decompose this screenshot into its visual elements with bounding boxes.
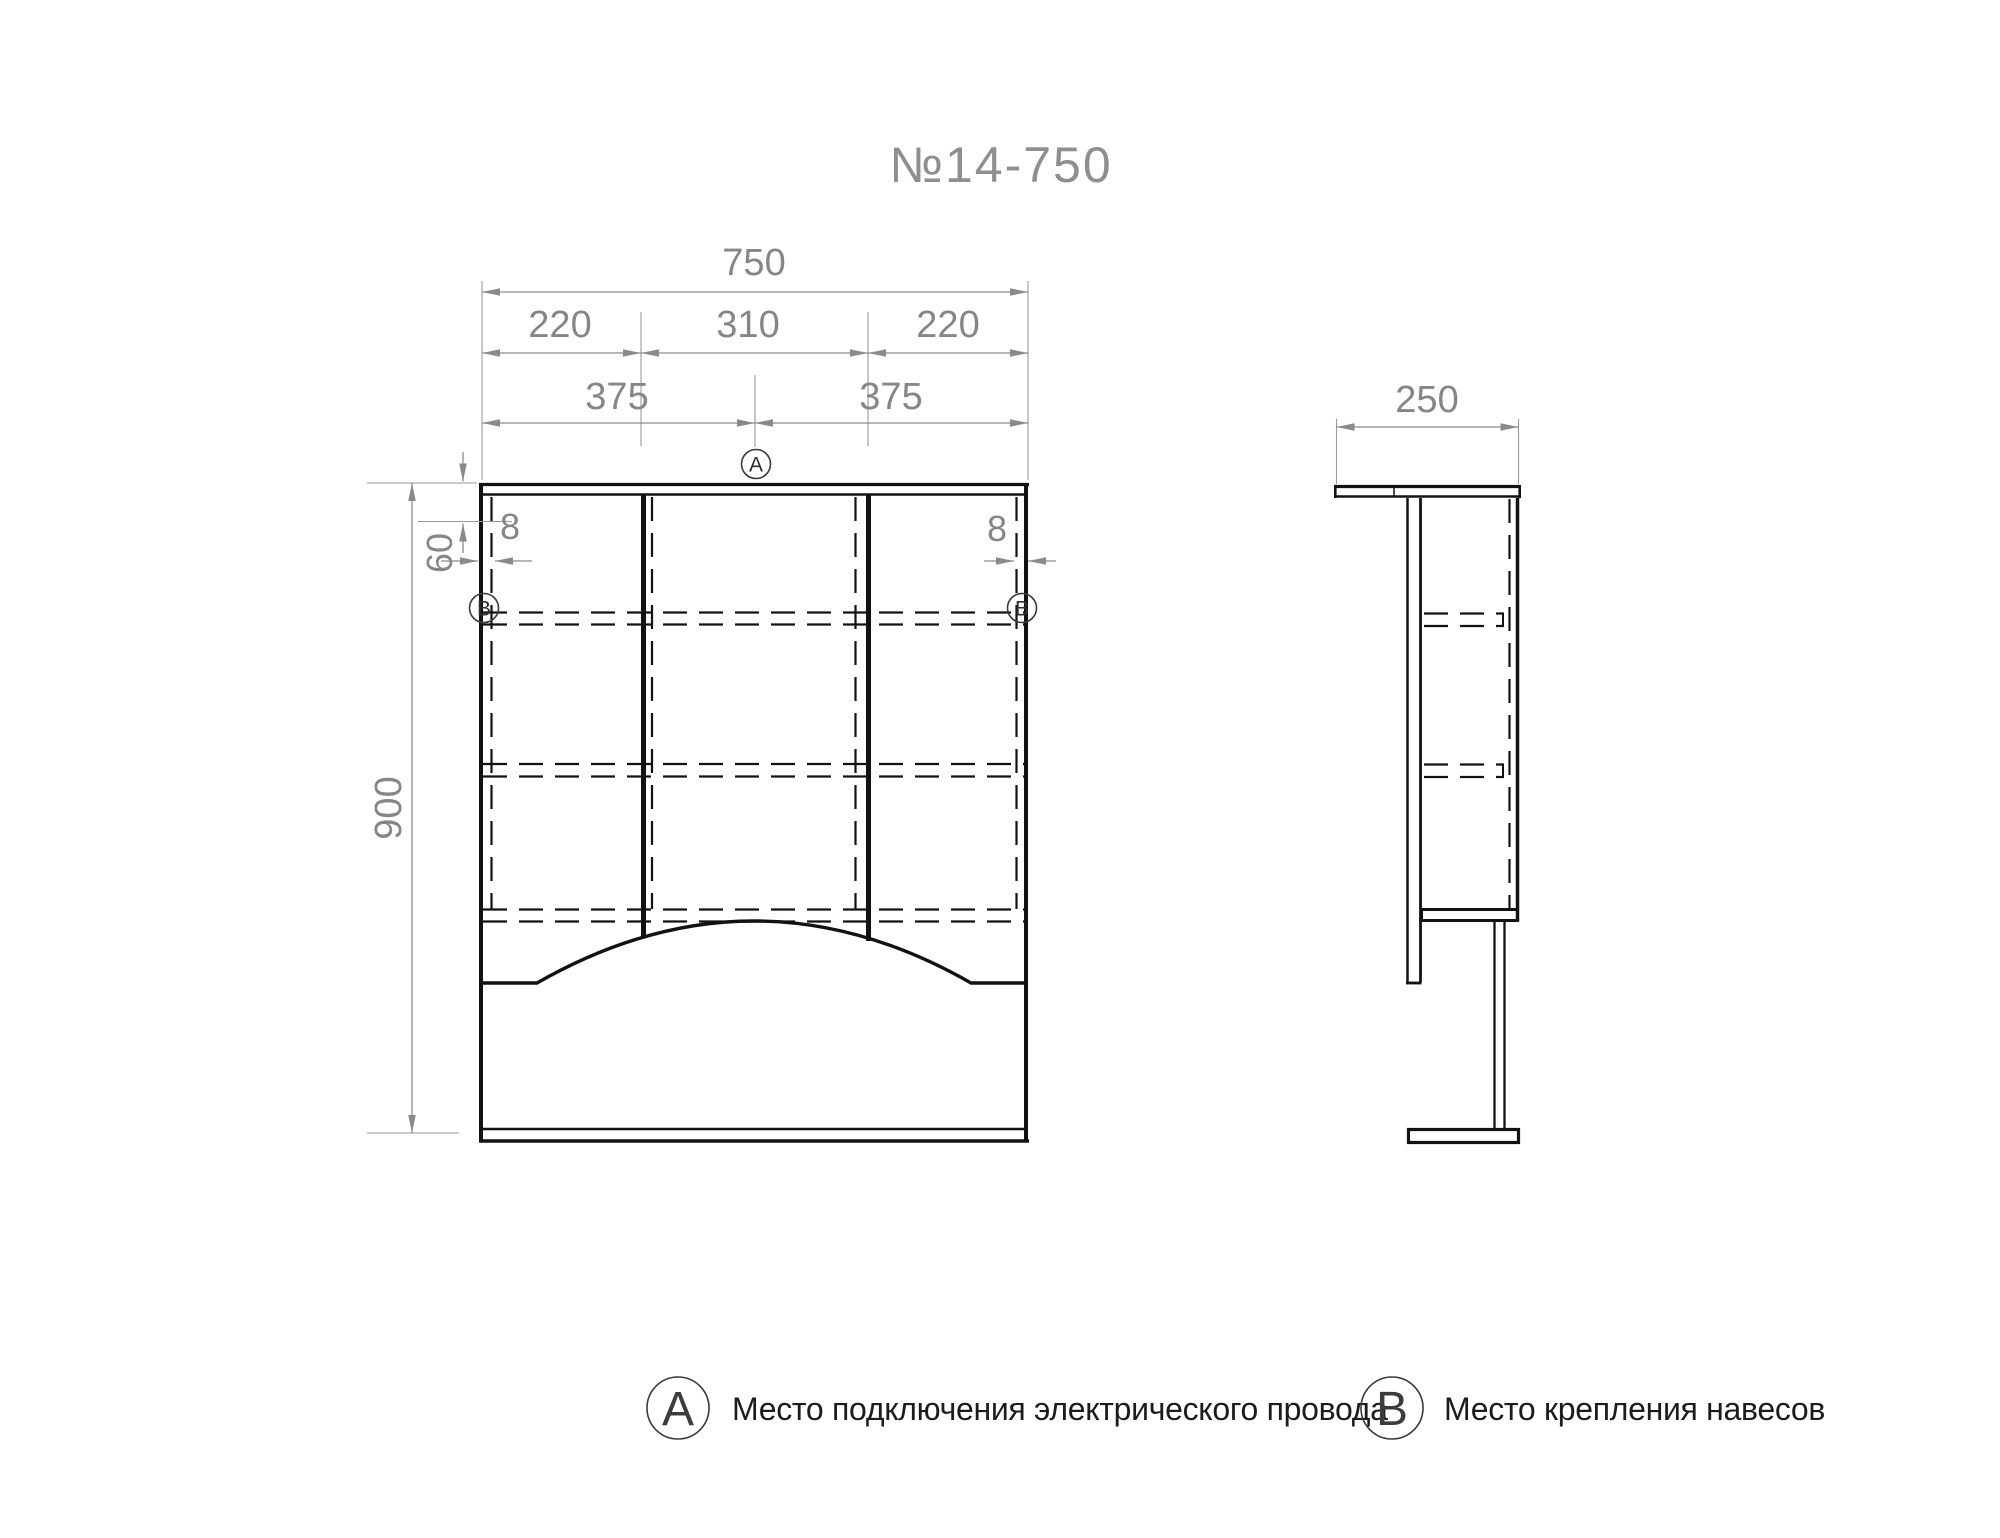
door-arc: [481, 921, 1026, 983]
legend-marker-a: A: [647, 1377, 709, 1439]
marker-b-left-callout: B: [470, 594, 499, 623]
dim-375-left-label: 375: [585, 376, 648, 418]
legend: A Место подключения электрического прово…: [647, 1377, 1825, 1439]
dim-220-left-label: 220: [528, 304, 591, 346]
side-view: [1334, 485, 1521, 1143]
technical-drawing: №14-750 A B: [0, 0, 2000, 1538]
dimension-60: 60: [418, 452, 512, 573]
dimension-depth-250: 250: [1337, 379, 1519, 484]
dimension-height-900: 900: [367, 483, 477, 1133]
base-plate: [1409, 1130, 1519, 1143]
dim-375-right-label: 375: [859, 376, 922, 418]
dim-8-right-label: 8: [987, 508, 1007, 549]
legend-label-a: Место подключения электрического провода: [732, 1391, 1388, 1427]
front-view: A B B: [470, 450, 1037, 1143]
drawing-canvas: №14-750 A B: [0, 0, 2000, 1538]
dim-8-left-label: 8: [500, 506, 520, 547]
marker-b-left-letter: B: [477, 598, 491, 621]
dim-900-label: 900: [368, 776, 410, 839]
dim-250-label: 250: [1395, 379, 1458, 421]
legend-marker-a-letter: A: [662, 1383, 694, 1436]
legend-marker-b-letter: B: [1376, 1383, 1408, 1436]
dim-60-label: 60: [419, 533, 460, 573]
dim-750-label: 750: [722, 242, 785, 284]
drawing-title: №14-750: [889, 137, 1112, 193]
dimension-8-right: 8: [984, 508, 1056, 561]
marker-b-right-letter: B: [1015, 598, 1029, 621]
legend-label-b: Место крепления навесов: [1444, 1391, 1825, 1427]
marker-a-callout: A: [742, 450, 771, 479]
dimensions-front-top: 750 220 310 220 375 375: [482, 242, 1028, 480]
dim-310-label: 310: [716, 304, 779, 346]
marker-b-right-callout: B: [1008, 594, 1037, 623]
dim-220-right-label: 220: [916, 304, 979, 346]
marker-a-letter: A: [749, 454, 763, 477]
